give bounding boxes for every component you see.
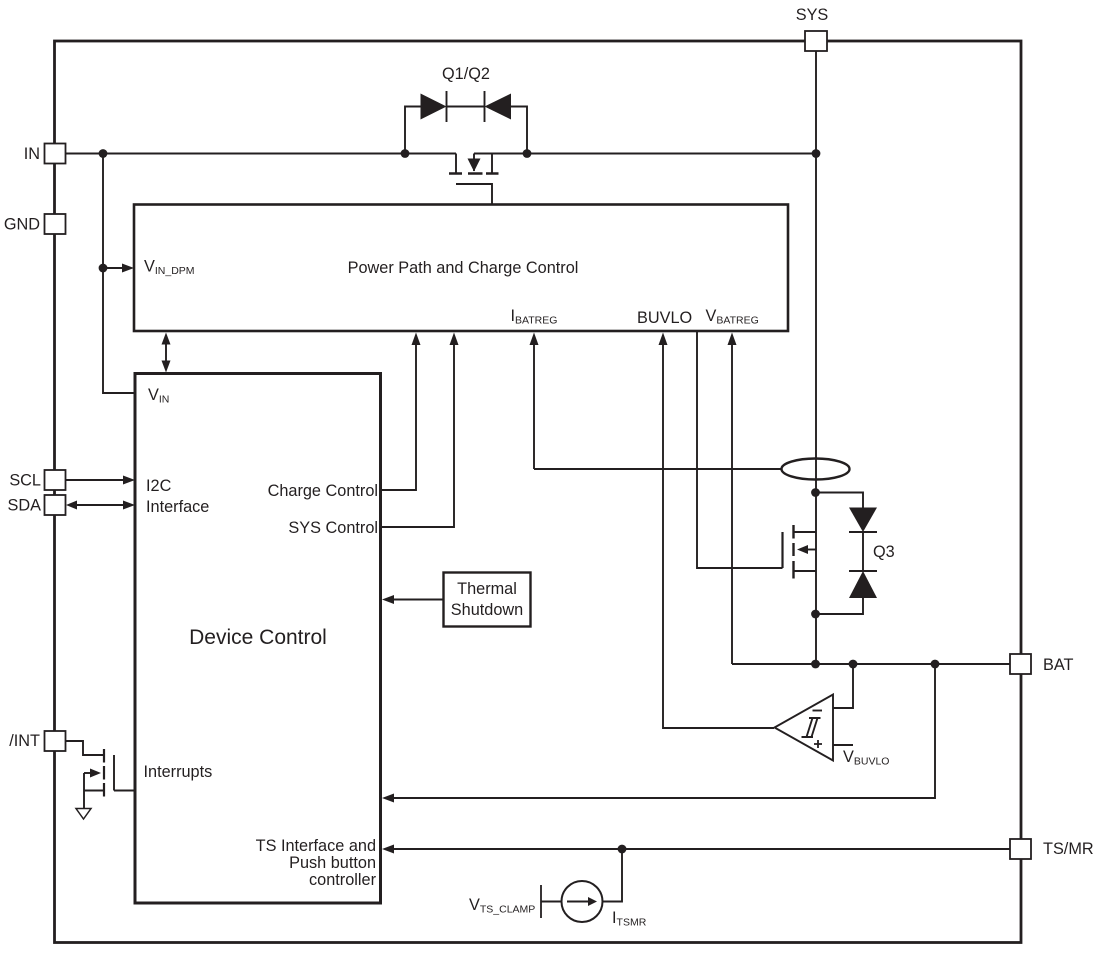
svg-text:VIN: VIN	[148, 386, 169, 406]
svg-text:I2C: I2C	[146, 477, 172, 495]
svg-text:BUVLO: BUVLO	[637, 309, 692, 327]
svg-text:Interrupts: Interrupts	[144, 763, 213, 781]
svg-text:VTS_CLAMP: VTS_CLAMP	[469, 896, 535, 916]
svg-text:IN: IN	[24, 145, 40, 163]
svg-text:SYS Control: SYS Control	[288, 519, 378, 537]
svg-text:TS Interface and: TS Interface and	[256, 837, 376, 855]
svg-text:Thermal: Thermal	[457, 580, 517, 598]
svg-text:BAT: BAT	[1043, 656, 1074, 674]
svg-text:Q1/Q2: Q1/Q2	[442, 65, 490, 83]
svg-text:IBATREG: IBATREG	[511, 307, 558, 327]
svg-text:SDA: SDA	[8, 497, 42, 515]
svg-text:Shutdown: Shutdown	[451, 601, 523, 619]
svg-text:TS/MR: TS/MR	[1043, 840, 1094, 858]
svg-text:ITSMR: ITSMR	[612, 909, 647, 929]
svg-text:Interface: Interface	[146, 498, 209, 516]
svg-text:Charge Control: Charge Control	[268, 482, 378, 500]
svg-text:/INT: /INT	[9, 732, 40, 750]
svg-text:Power Path and Charge Control: Power Path and Charge Control	[348, 259, 579, 277]
svg-text:VBATREG: VBATREG	[706, 307, 759, 327]
svg-text:VIN_DPM: VIN_DPM	[144, 258, 195, 278]
svg-text:controller: controller	[309, 871, 377, 889]
svg-text:SCL: SCL	[9, 472, 41, 490]
svg-text:GND: GND	[4, 216, 40, 234]
svg-text:SYS: SYS	[796, 6, 829, 24]
svg-text:VBUVLO: VBUVLO	[843, 748, 889, 768]
svg-text:Push button: Push button	[289, 854, 376, 872]
svg-text:Device Control: Device Control	[189, 626, 327, 649]
svg-text:Q3: Q3	[873, 543, 895, 561]
